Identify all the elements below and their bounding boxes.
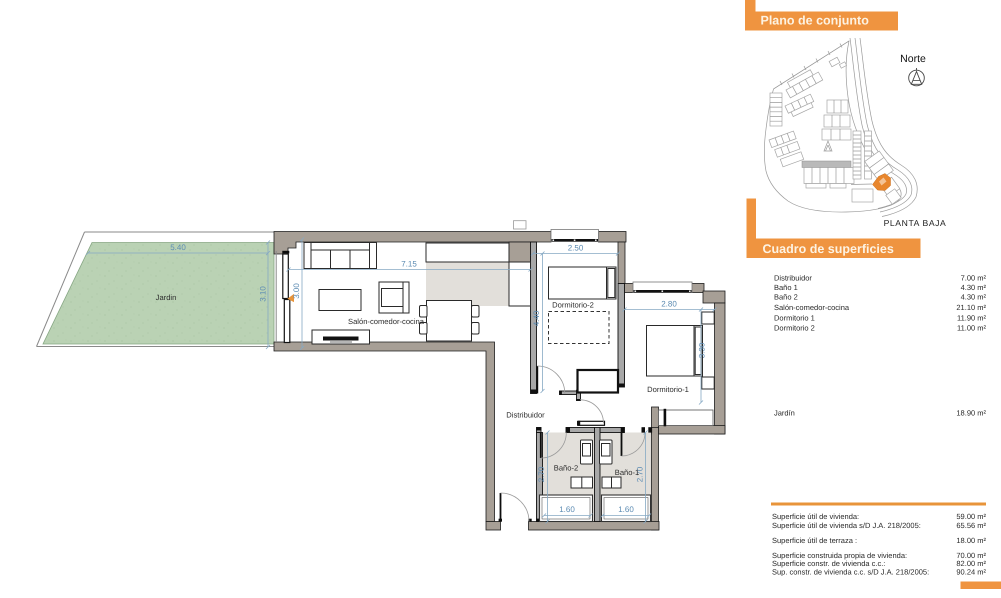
svg-text:1.60: 1.60 — [618, 505, 634, 514]
svg-text:18.00 m²: 18.00 m² — [956, 536, 986, 545]
svg-text:Dormitorio-2: Dormitorio-2 — [552, 301, 594, 310]
svg-text:Dormitorio 1: Dormitorio 1 — [774, 314, 815, 323]
svg-text:7.15: 7.15 — [401, 260, 417, 269]
svg-text:Dormitorio-1: Dormitorio-1 — [647, 385, 689, 394]
svg-text:Superficie útil de terraza :: Superficie útil de terraza : — [772, 536, 857, 545]
svg-text:Baño-1: Baño-1 — [615, 468, 640, 477]
svg-text:Superficie útil de vivienda s/: Superficie útil de vivienda s/D J.A. 218… — [772, 521, 921, 530]
svg-text:Distribuidor: Distribuidor — [506, 411, 545, 420]
svg-text:Superficie útil de vivienda:: Superficie útil de vivienda: — [772, 512, 859, 521]
svg-text:Norte: Norte — [900, 53, 926, 65]
svg-text:Plano de conjunto: Plano de conjunto — [761, 14, 870, 28]
svg-text:Salón-comedor-cocina: Salón-comedor-cocina — [348, 317, 425, 326]
svg-text:3.30: 3.30 — [698, 342, 707, 358]
svg-text:Cuadro de superficies: Cuadro de superficies — [763, 242, 894, 256]
svg-text:59.00 m²: 59.00 m² — [956, 512, 986, 521]
svg-text:Distribuidor: Distribuidor — [774, 273, 812, 282]
svg-text:21.10 m²: 21.10 m² — [956, 303, 986, 312]
svg-text:65.56 m²: 65.56 m² — [956, 521, 986, 530]
svg-text:1.60: 1.60 — [559, 505, 575, 514]
svg-text:4.30 m²: 4.30 m² — [961, 283, 987, 292]
svg-text:Baño-2: Baño-2 — [554, 464, 579, 473]
svg-text:Sup. constr. de vivienda c.c.: Sup. constr. de vivienda c.c. s/D J.A. 2… — [772, 567, 929, 576]
svg-text:2.70: 2.70 — [537, 466, 546, 482]
svg-text:11.00 m²: 11.00 m² — [957, 324, 987, 333]
svg-text:4.40: 4.40 — [532, 310, 541, 326]
svg-text:3.10: 3.10 — [259, 286, 268, 302]
svg-text:7.00 m²: 7.00 m² — [961, 273, 987, 282]
svg-text:90.24 m²: 90.24 m² — [956, 567, 986, 576]
svg-text:PLANTA BAJA: PLANTA BAJA — [884, 218, 947, 228]
svg-text:Jardín: Jardín — [774, 409, 795, 418]
svg-text:11.90 m²: 11.90 m² — [957, 314, 987, 323]
svg-text:Dormitorio 2: Dormitorio 2 — [774, 324, 815, 333]
svg-text:4.30 m²: 4.30 m² — [961, 292, 987, 301]
svg-text:2.50: 2.50 — [568, 244, 584, 253]
svg-text:2.80: 2.80 — [661, 300, 677, 309]
svg-text:Jardin: Jardin — [156, 293, 177, 302]
svg-text:3.00: 3.00 — [292, 283, 301, 299]
svg-text:Baño 2: Baño 2 — [774, 292, 798, 301]
svg-text:5.40: 5.40 — [170, 243, 186, 252]
svg-text:18.90 m²: 18.90 m² — [956, 409, 986, 418]
svg-text:Salón-comedor-cocina: Salón-comedor-cocina — [774, 303, 850, 312]
svg-text:Baño 1: Baño 1 — [774, 283, 798, 292]
